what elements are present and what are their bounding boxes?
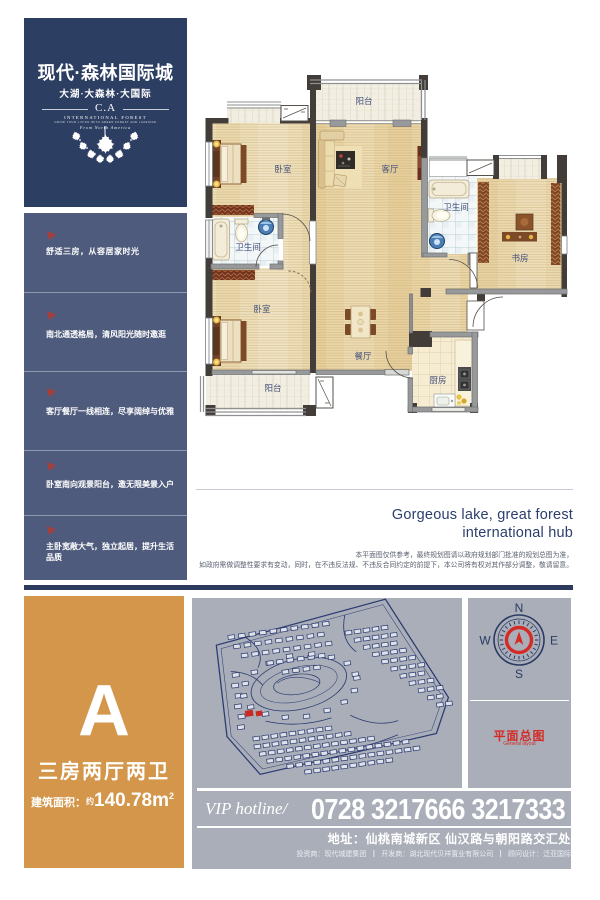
svg-text:S: S — [515, 667, 523, 681]
svg-text:W: W — [479, 634, 491, 648]
svg-text:卫生间: 卫生间 — [235, 242, 261, 252]
svg-text:卧室: 卧室 — [274, 164, 292, 174]
svg-text:阳台: 阳台 — [264, 383, 281, 393]
svg-text:阳台: 阳台 — [355, 96, 372, 106]
svg-text:N: N — [515, 601, 524, 615]
svg-text:厨房: 厨房 — [429, 375, 446, 385]
svg-text:餐厅: 餐厅 — [354, 351, 372, 361]
svg-text:卫生间: 卫生间 — [443, 202, 469, 212]
svg-text:E: E — [550, 634, 558, 648]
svg-text:书房: 书房 — [511, 253, 528, 263]
svg-text:客厅: 客厅 — [381, 164, 399, 174]
svg-text:卧室: 卧室 — [253, 304, 271, 314]
